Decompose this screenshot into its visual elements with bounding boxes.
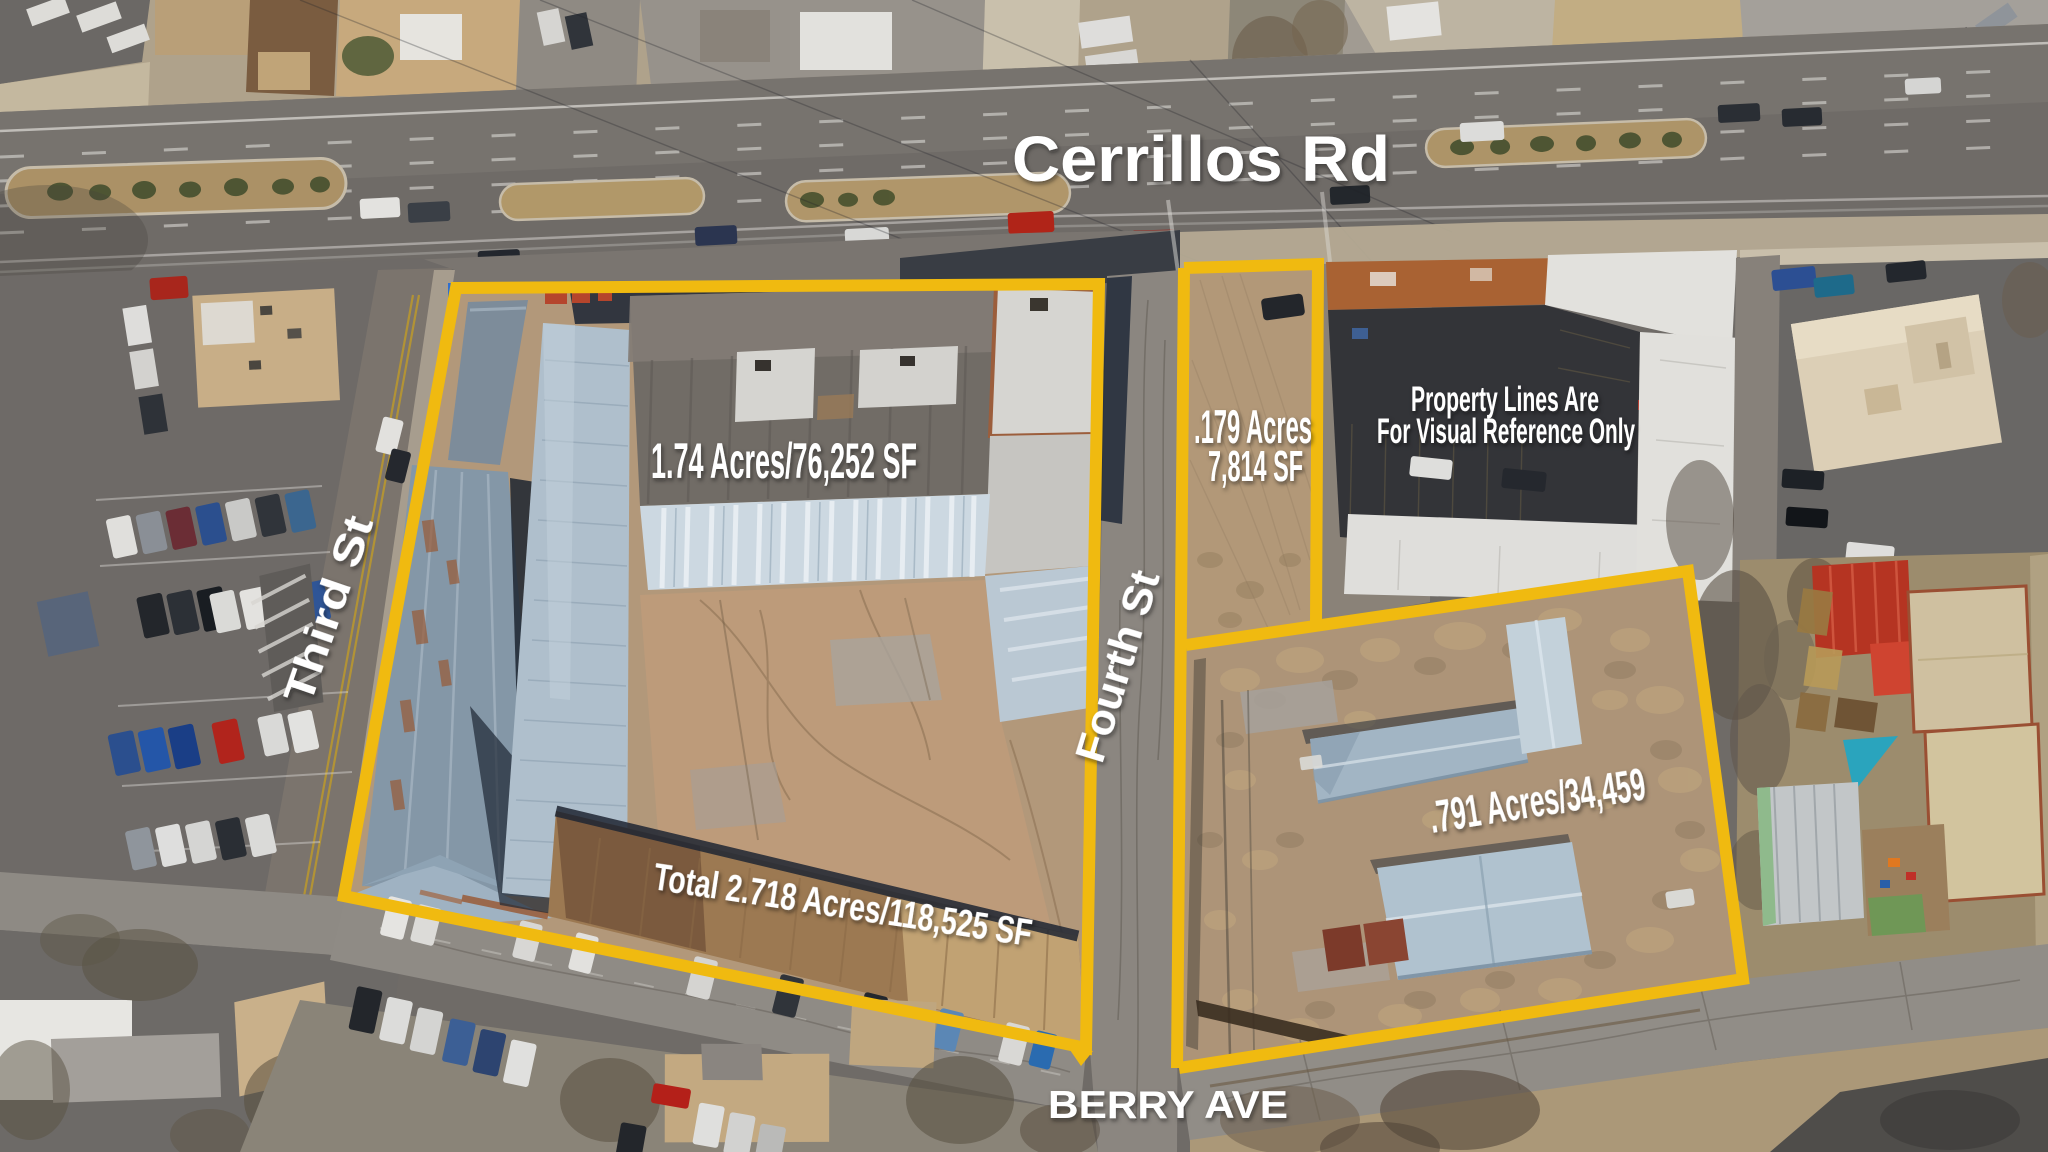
svg-text:1.74 Acres/76,252 SF: 1.74 Acres/76,252 SF <box>651 433 917 489</box>
svg-text:For Visual Reference Only: For Visual Reference Only <box>1377 412 1635 451</box>
svg-text:BERRY AVE: BERRY AVE <box>1048 1084 1288 1127</box>
svg-text:Cerrillos Rd: Cerrillos Rd <box>1012 123 1390 195</box>
svg-text:7,814 SF: 7,814 SF <box>1208 442 1303 491</box>
